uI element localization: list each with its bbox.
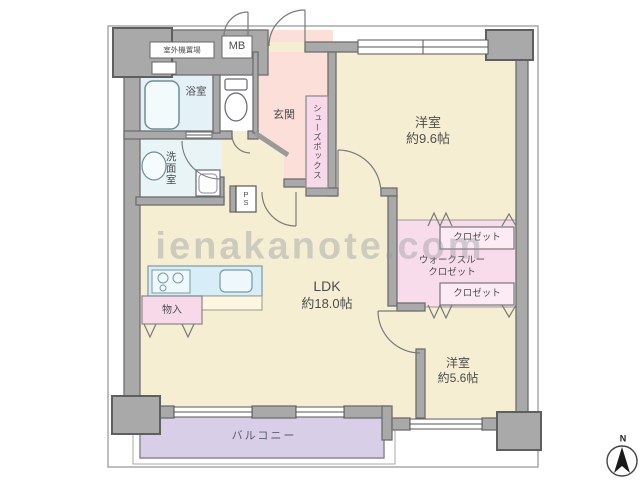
storage-label: 物入	[162, 305, 182, 318]
shoebox-label: シューズボックス	[312, 104, 323, 180]
ldk-size: 約18.0帖	[301, 296, 352, 312]
toilet-bowl	[225, 93, 247, 121]
bedroom2-window	[410, 419, 482, 429]
column-bottom-right	[497, 412, 541, 450]
bedroom1-window	[358, 40, 488, 54]
ldk-name: LDK	[301, 278, 352, 296]
closet-bottom-label: クロゼット	[453, 288, 501, 300]
pipe-space-label: P S	[243, 191, 248, 208]
bath-label: 浴室	[186, 85, 207, 98]
watermark: ienakanote.com	[155, 226, 484, 269]
bedroom1-name: 洋室	[406, 115, 450, 131]
bath-sliding-door	[186, 132, 212, 138]
kitchen-sink	[220, 270, 252, 292]
column-top-right	[486, 30, 533, 60]
bedroom2-name: 洋室	[438, 356, 479, 371]
bedroom2-label: 洋室 約5.6帖	[438, 356, 479, 386]
bedroom2-size: 約5.6帖	[438, 371, 479, 386]
compass	[607, 446, 637, 476]
bedroom1-size: 約9.6帖	[406, 131, 450, 147]
entrance-label: 玄関	[273, 109, 295, 123]
toilet-tank	[225, 79, 247, 90]
washroom-label: 洗面室	[163, 151, 176, 186]
bathtub	[145, 81, 179, 129]
meter-box-label: MB	[229, 40, 246, 54]
ldk-label: LDK 約18.0帖	[301, 278, 352, 312]
bedroom1-label: 洋室 約9.6帖	[406, 115, 450, 148]
balcony-label: バルコニー	[232, 430, 297, 444]
stove	[152, 270, 190, 293]
floorplan-canvas: 室外機置場 MB 浴室 洗面室 玄関 シューズボックス P S 洋室 約9.6帖…	[0, 0, 640, 480]
outdoor-unit-label: 室外機置場	[163, 45, 201, 54]
compass-north-label: N	[620, 433, 627, 444]
washbasin	[142, 152, 166, 180]
column-bottom-left	[112, 396, 160, 434]
